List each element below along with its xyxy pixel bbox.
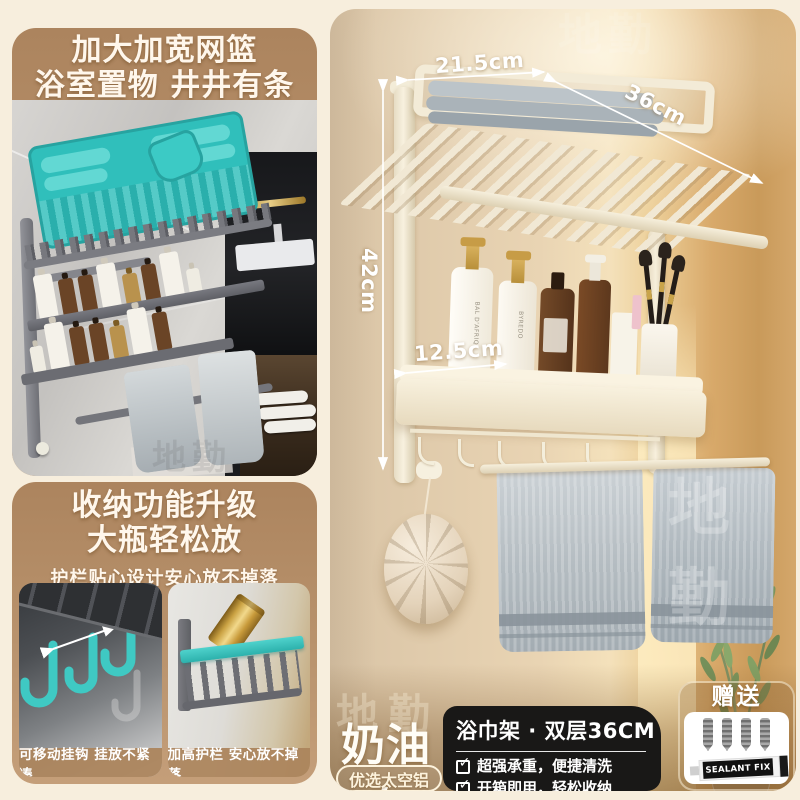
caption-left: 可移动挂钩 挂放不紧凑 bbox=[19, 748, 162, 777]
left-bottom-panel: 收纳功能升级 大瓶轻松放 护栏贴心设计安心放不掉落 bbox=[12, 482, 317, 784]
bottle bbox=[95, 262, 122, 311]
left-top-panel: 加大加宽网篮 浴室置物 井井有条 bbox=[12, 28, 317, 476]
gray-towel bbox=[197, 350, 265, 467]
raised-guardrail-photo: 加高护栏 安心放不掉落 bbox=[168, 583, 311, 777]
movable-hooks-photo: 可移动挂钩 挂放不紧凑 bbox=[19, 583, 162, 777]
pumpkin-loofah bbox=[384, 514, 468, 624]
screw-icon bbox=[741, 718, 751, 751]
feature-text: 开箱即用，轻松收纳 bbox=[477, 779, 612, 791]
bottle bbox=[126, 307, 153, 356]
product-poster: 加大加宽网篮 浴室置物 井井有条 bbox=[0, 0, 800, 800]
tube-cap bbox=[779, 755, 788, 776]
bottle bbox=[151, 311, 172, 351]
white-pump-bottle: BYREDO bbox=[496, 280, 537, 377]
amber-pump-bottle bbox=[576, 279, 612, 382]
hanging-towel bbox=[496, 464, 645, 653]
feature-row: ✓ 超强承重，便捷清洗 bbox=[456, 757, 648, 776]
caption-right: 加高护栏 安心放不掉落 bbox=[168, 748, 311, 777]
bottle bbox=[159, 251, 186, 300]
watermark: 地勤 bbox=[558, 9, 658, 63]
feature-row: ✓ 开箱即用，轻松收纳 bbox=[456, 779, 648, 791]
left-top-title: 加大加宽网篮 浴室置物 井井有条 bbox=[12, 28, 317, 103]
left-bottom-title-line1: 收纳功能升级 bbox=[12, 488, 317, 523]
amber-bottle-label bbox=[543, 318, 568, 353]
left-bottom-title-line2: 大瓶轻松放 bbox=[12, 523, 317, 558]
wall-hook bbox=[36, 442, 49, 455]
checkbox-icon: ✓ bbox=[456, 760, 470, 774]
hanging-towel bbox=[650, 466, 775, 644]
feature-text: 超强承重，便捷清洗 bbox=[477, 757, 612, 776]
feature-photos: 可移动挂钩 挂放不紧凑 加高护栏 安心放不掉落 bbox=[19, 583, 310, 777]
left-top-title-line2: 浴室置物 井井有条 bbox=[12, 68, 317, 103]
tube-nozzle bbox=[690, 766, 699, 775]
screw-icon bbox=[722, 718, 732, 751]
bottle bbox=[68, 326, 89, 366]
towel-stripe bbox=[499, 612, 645, 627]
bottle bbox=[88, 322, 109, 362]
bottle bbox=[43, 321, 70, 370]
gift-card: 赠送 SEALANT FIX bbox=[678, 681, 795, 791]
white-pump bbox=[589, 261, 601, 280]
screw-icon bbox=[760, 718, 770, 751]
gray-shelf-photo: 地勤 bbox=[12, 100, 317, 476]
towel-stripe bbox=[651, 604, 773, 618]
product-title: 浴巾架 · 双层36CM bbox=[456, 715, 648, 745]
divider bbox=[456, 751, 646, 752]
bottle bbox=[32, 273, 59, 322]
product-info-card: 浴巾架 · 双层36CM ✓ 超强承重，便捷清洗 ✓ 开箱即用，轻松收纳 bbox=[443, 706, 661, 791]
material-badge: 优选太空铝 bbox=[336, 765, 442, 791]
makeup-brush bbox=[643, 263, 655, 327]
checkbox-icon: ✓ bbox=[456, 782, 470, 792]
j-hook bbox=[458, 439, 474, 467]
gray-towel bbox=[123, 364, 203, 474]
faucet bbox=[273, 224, 283, 243]
tube-label: SEALANT FIX bbox=[703, 758, 774, 779]
gift-contents: SEALANT FIX bbox=[684, 712, 789, 784]
screw-icon bbox=[703, 718, 713, 751]
towel-stripe bbox=[651, 624, 773, 630]
sealant-tube: SEALANT FIX bbox=[690, 755, 789, 781]
bottle-brand-label: BYREDO bbox=[516, 311, 524, 339]
gold-pump bbox=[511, 259, 525, 283]
gold-pump bbox=[466, 245, 480, 269]
screws bbox=[684, 718, 789, 751]
left-bottom-title: 收纳功能升级 大瓶轻松放 护栏贴心设计安心放不掉落 bbox=[12, 482, 317, 590]
gift-label: 赠送 bbox=[680, 683, 793, 712]
dark-cap bbox=[551, 272, 565, 289]
left-top-title-line1: 加大加宽网篮 bbox=[12, 33, 317, 68]
towel-stripe bbox=[499, 632, 645, 639]
dimension-height: 42cm bbox=[357, 248, 381, 310]
main-product-photo: BAL D'AFRIQ BYREDO bbox=[330, 9, 796, 791]
bottle bbox=[109, 325, 129, 359]
lip-gloss bbox=[632, 295, 642, 329]
